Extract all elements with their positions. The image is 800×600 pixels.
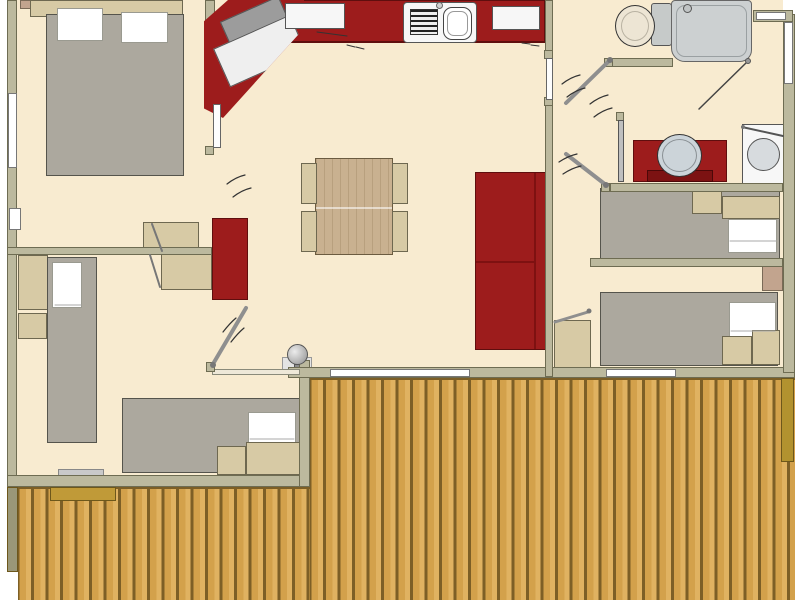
shower-cabin (671, 0, 752, 62)
window-top-stub (756, 12, 786, 20)
floor-plan (0, 0, 800, 600)
bedroom-left-pillow-horizontal (248, 412, 296, 445)
dining-table (315, 158, 393, 255)
wall-master-bottom (7, 247, 212, 255)
deck-rail-left (7, 487, 18, 572)
boiler-sphere (287, 344, 308, 365)
wardrobe-red (212, 218, 248, 300)
sliding-door-living (330, 369, 470, 377)
wall-wc-bottom (612, 58, 673, 67)
jamb-bedroomleft-door (206, 362, 215, 372)
cooktop-grill (410, 9, 438, 35)
deck-right (310, 378, 795, 600)
window-bedroom-right2 (606, 369, 676, 377)
dining-chair-4 (392, 211, 408, 252)
bedroom-left-pillow-vertical (52, 262, 82, 308)
window-left-small (9, 208, 21, 230)
dining-table-split (316, 207, 392, 209)
bedroom-right2-desk (554, 320, 591, 368)
kitchen-cabinet (492, 6, 540, 30)
wall-mid (545, 104, 553, 377)
wall-thin-living-south (212, 369, 300, 375)
dining-chair-2 (392, 163, 408, 204)
nightstand-shared (762, 266, 783, 291)
jamb-wc-door (604, 58, 613, 67)
washbasin-inner (662, 139, 697, 172)
dining-chair-1 (301, 163, 317, 204)
bedroom-left-side-table (18, 313, 47, 339)
wall-bathroom-bottom (610, 183, 783, 192)
washing-machine (742, 124, 784, 185)
sofa-seat-split (476, 261, 534, 263)
bedroom-left-foot-cabinet-b (246, 442, 303, 475)
bedroom-right1-pillow (728, 219, 777, 253)
washbasin (657, 134, 702, 177)
shower-drain (683, 4, 692, 13)
master-pillow-left (57, 8, 103, 41)
deck-bottom (18, 487, 310, 600)
hallway-door-leaf (546, 58, 553, 100)
wall-bedroomleft-bottom (7, 475, 309, 487)
kitchen-cooktop-sink-unit (403, 2, 477, 43)
master-door-leaf (213, 104, 221, 148)
bedroom-right2-footboard-a (722, 336, 752, 365)
bathroom-door-leaf (618, 120, 624, 182)
master-desk (143, 222, 199, 248)
jamb-bedroom-right1-door (601, 183, 610, 192)
window-right (784, 22, 793, 84)
kitchen-sink-bowl (447, 11, 468, 36)
kitchen-worktop-board (285, 3, 345, 29)
master-pillow-right (121, 12, 168, 43)
window-left (8, 93, 17, 168)
sofa (475, 172, 547, 350)
wall-bedroomleft-right (299, 360, 310, 487)
bedroom-left-desk (161, 253, 212, 290)
entry-step (50, 487, 116, 501)
bedroom-left-headboard (18, 255, 48, 310)
wall-bedrooms-right-divider (590, 258, 783, 267)
sofa-back-line (534, 173, 536, 349)
washing-machine-drum (747, 138, 780, 171)
kitchen-faucet (436, 2, 443, 9)
toilet-bowl-inner (621, 11, 649, 41)
bedroom-left-foot-cabinet-a (217, 446, 246, 475)
wall-left (7, 0, 17, 487)
deck-rail-right (781, 378, 794, 462)
wall-mid-top (545, 0, 553, 52)
bedroom-right1-headboard-b (722, 196, 780, 219)
bedroom-right2-footboard-b (752, 330, 780, 365)
toilet-bowl (615, 5, 655, 47)
dining-chair-3 (301, 211, 317, 252)
kitchen-sink (443, 7, 472, 40)
